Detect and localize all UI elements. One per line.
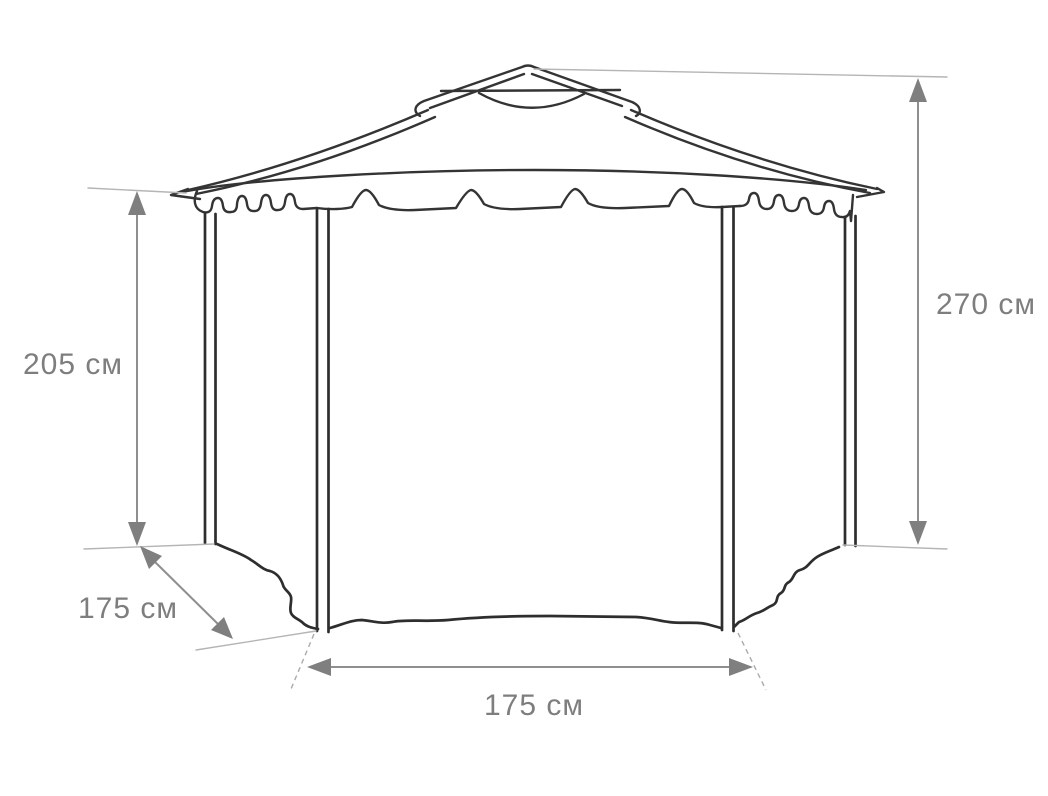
post-right-inner xyxy=(722,207,734,631)
dimension-side-depth: 175 см xyxy=(78,546,233,639)
drawing-canvas: 205 см 270 см 175 см 175 см xyxy=(0,0,1048,796)
roof-cap-back-edge xyxy=(441,90,620,91)
arrow-down-icon xyxy=(909,521,927,545)
dimension-label-left-height: 205 см xyxy=(23,348,123,381)
post-left-inner xyxy=(317,209,329,632)
extension-line-diagonal-bottom xyxy=(196,631,316,650)
arrow-up-icon xyxy=(128,191,146,215)
dimension-left-height: 205 см xyxy=(23,191,146,546)
extension-line-right-bottom xyxy=(843,545,947,549)
eave-valance xyxy=(195,189,853,221)
extension-line-right-top xyxy=(534,69,947,77)
valance-right-scallops xyxy=(740,193,853,221)
extension-line-left-bottom xyxy=(84,544,214,549)
valance-left-scallops xyxy=(195,191,317,212)
post-left-outer xyxy=(205,213,216,544)
roof-vent-dome xyxy=(479,93,584,108)
extension-slash-bottom-right xyxy=(738,633,766,690)
gazebo-dimension-drawing: 205 см 270 см 175 см 175 см xyxy=(0,0,1048,796)
dimension-label-side-depth: 175 см xyxy=(78,592,178,625)
arrow-down-icon xyxy=(128,522,146,546)
roof-hip-left-inner xyxy=(196,117,435,194)
arrow-left-icon xyxy=(307,658,331,676)
extension-slash-bottom-left xyxy=(291,634,314,689)
dimension-label-total-height: 270 см xyxy=(936,288,1036,321)
wall-bottom-right-side xyxy=(734,547,839,627)
main-roof xyxy=(171,110,884,199)
dimension-front-width: 175 см xyxy=(307,658,753,722)
wall-bottom-left-side xyxy=(217,544,318,629)
wall-bottom-front xyxy=(330,616,721,628)
roof-cap xyxy=(415,66,639,117)
fabric-walls xyxy=(217,544,839,629)
dimension-total-height: 270 см xyxy=(909,78,1036,545)
dimension-annotations: 205 см 270 см 175 см 175 см xyxy=(23,69,1036,722)
valance-front-edge xyxy=(317,189,740,210)
arrow-up-icon xyxy=(909,78,927,102)
dimension-label-front-width: 175 см xyxy=(484,689,584,722)
arrow-right-icon xyxy=(729,658,753,676)
posts xyxy=(205,207,856,632)
gazebo-structure xyxy=(171,66,884,633)
post-right-outer xyxy=(845,216,856,546)
